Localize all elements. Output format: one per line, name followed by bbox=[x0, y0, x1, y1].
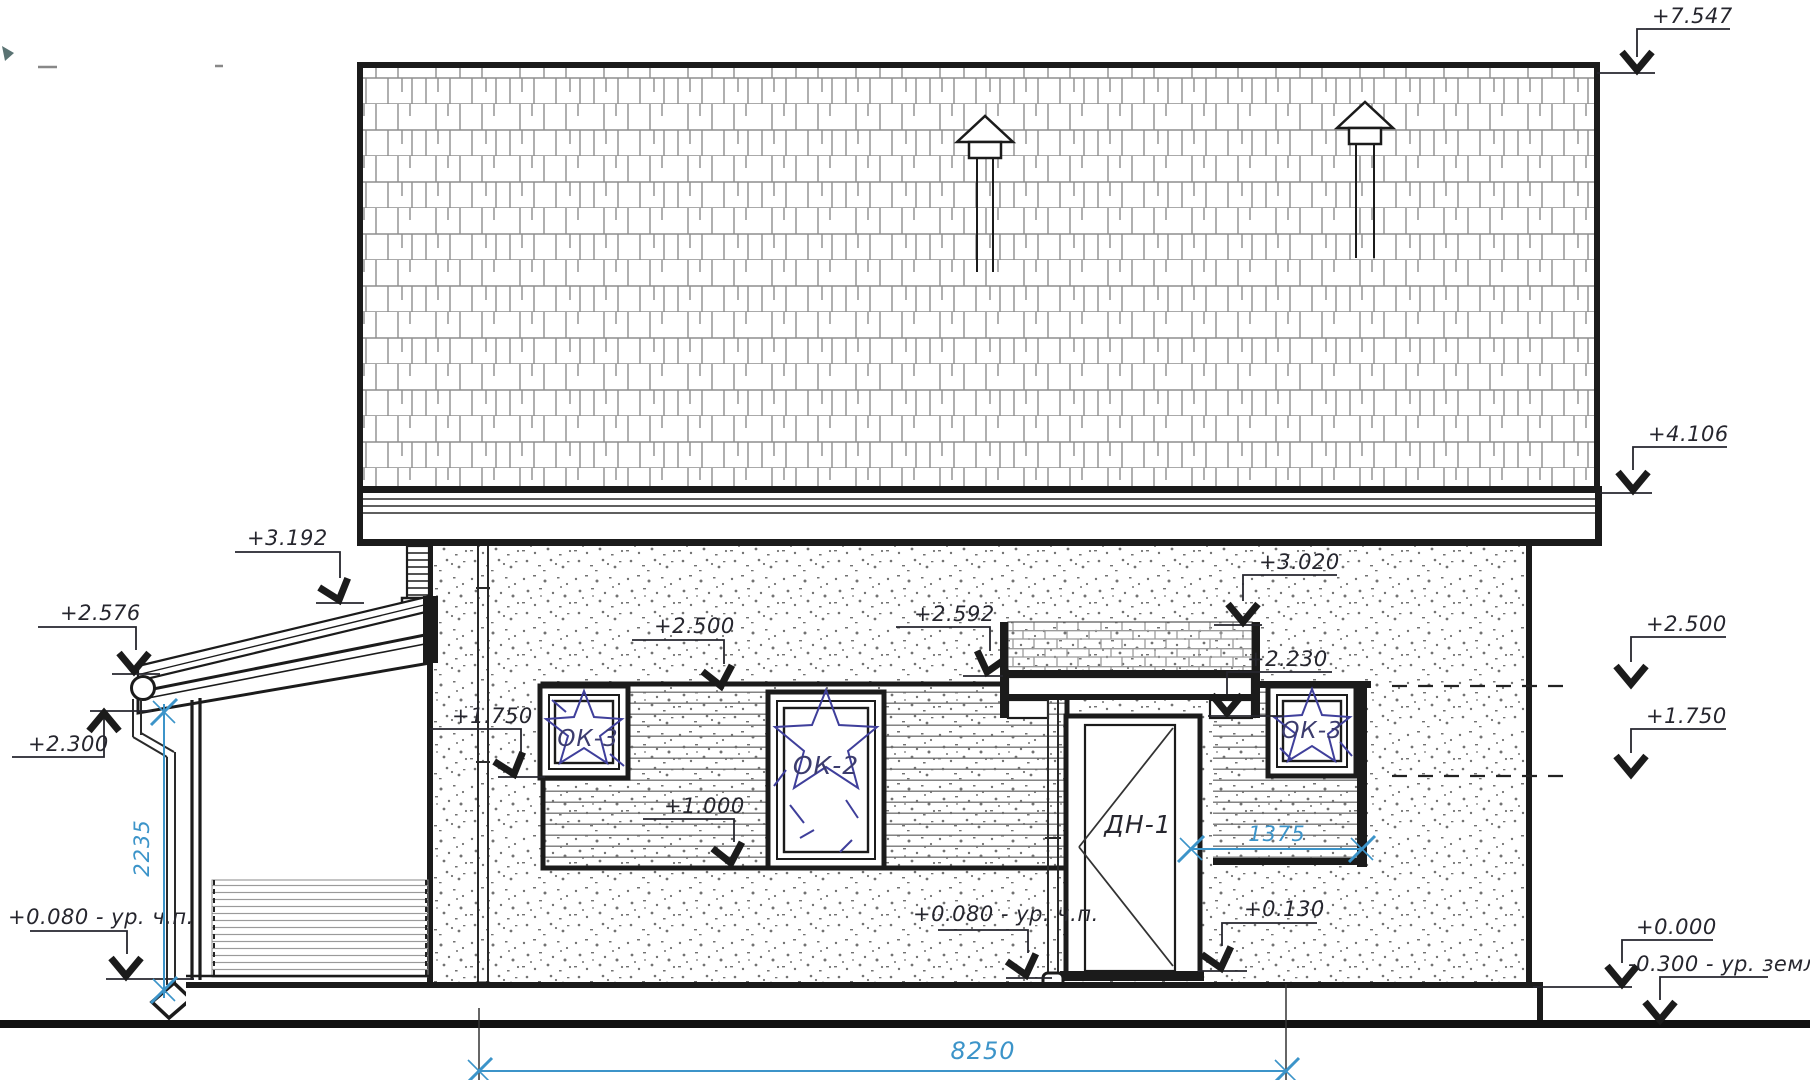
mark-leader bbox=[1631, 637, 1726, 662]
elevation-mark-1750-right: +1.750 bbox=[1616, 704, 1727, 774]
plinth bbox=[186, 982, 1543, 1022]
mark-label: -0.300 - ур. земли bbox=[1628, 952, 1810, 976]
canopy-bracket-left bbox=[1008, 700, 1048, 718]
mark-arrow bbox=[1616, 756, 1646, 774]
mark-label: +0.080 - ур. ч.п. bbox=[8, 905, 194, 929]
mark-label: +2.576 bbox=[60, 601, 141, 625]
porch-post bbox=[192, 698, 200, 980]
window-ok2-frame bbox=[768, 692, 884, 868]
window-ok2-label: ОК-2 bbox=[793, 751, 859, 780]
mark-label: +0.130 bbox=[1244, 897, 1325, 921]
ground-line bbox=[0, 1020, 1810, 1028]
window-ok3-left-label: ОК-3 bbox=[557, 726, 618, 752]
porch-lattice bbox=[212, 880, 428, 977]
fascia-bottom-edge bbox=[357, 539, 1602, 546]
window-ok3-right-label: ОК-3 bbox=[1281, 718, 1342, 744]
fascia-right-cap bbox=[1595, 490, 1602, 543]
mark-label: +4.106 bbox=[1648, 422, 1729, 446]
door-dn1 bbox=[1060, 716, 1204, 981]
mark-leader bbox=[235, 552, 340, 578]
mark-arrow bbox=[319, 578, 353, 604]
cursor-artifact bbox=[2, 46, 223, 67]
mark-arrow bbox=[1618, 472, 1648, 490]
fascia-left-cap bbox=[357, 490, 363, 543]
dim-value: 8250 bbox=[950, 1037, 1015, 1065]
elevation-mark-3192: +3.192 bbox=[235, 526, 364, 605]
elevation-mark-4106: +4.106 bbox=[1600, 422, 1729, 493]
brick-lintel bbox=[1008, 622, 1252, 672]
eave-fascia bbox=[357, 490, 1602, 546]
mark-label: +0.000 bbox=[1636, 915, 1717, 939]
grille-rungs bbox=[407, 553, 429, 595]
porch bbox=[132, 596, 439, 1018]
eave-trim-lines bbox=[362, 499, 1596, 513]
elevation-canvas: +7.547+4.106+3.192+2.576+2.300+2.500+1.7… bbox=[0, 0, 1810, 1080]
mark-leader bbox=[38, 627, 136, 650]
cursor-icon bbox=[2, 46, 14, 61]
wall-right-edge bbox=[1526, 546, 1532, 983]
porch-canopy-end-block bbox=[423, 596, 438, 663]
mark-label: +2.592 bbox=[914, 602, 995, 626]
mark-label: +7.547 bbox=[1652, 4, 1733, 28]
elevation-mark-7547: +7.547 bbox=[1597, 4, 1733, 73]
plinth-right-cap bbox=[1537, 982, 1543, 1022]
door-dn1-label: ДН-1 bbox=[1103, 810, 1171, 839]
vent-pipe-left-collar bbox=[969, 142, 1001, 158]
mark-arrow bbox=[111, 958, 141, 976]
siding-panel-right-bottom bbox=[1213, 858, 1367, 865]
vent-pipe-right-collar bbox=[1349, 128, 1381, 144]
mark-label: +3.192 bbox=[247, 526, 328, 550]
mark-leader bbox=[1631, 729, 1726, 753]
mark-leader bbox=[1633, 447, 1727, 470]
canopy-slab bbox=[1008, 677, 1252, 696]
mark-label: +0.080 - ур. ч.п. bbox=[913, 902, 1099, 926]
mark-label: +1.750 bbox=[1646, 704, 1727, 728]
grille-body bbox=[407, 546, 429, 599]
elevation-mark-2300: +2.300 bbox=[12, 711, 152, 757]
elevation-mark-0300: -0.300 - ур. земли bbox=[1628, 952, 1810, 1020]
dim-value: 1375 bbox=[1248, 822, 1305, 846]
smudge-marks bbox=[38, 66, 223, 67]
roof-bottom-edge bbox=[357, 486, 1602, 493]
mark-label: +1.750 bbox=[452, 704, 533, 728]
mark-arrow bbox=[1645, 1002, 1675, 1020]
mark-label: +3.020 bbox=[1259, 550, 1340, 574]
mark-arrow bbox=[1616, 666, 1646, 684]
elevation-mark-2500-right: +2.500 bbox=[1616, 612, 1727, 684]
dim-value: 2235 bbox=[130, 819, 154, 876]
mark-label: +2.300 bbox=[28, 732, 109, 756]
elevation-drawing: +7.547+4.106+3.192+2.576+2.300+2.500+1.7… bbox=[0, 0, 1810, 1080]
porch-gutter bbox=[132, 677, 155, 700]
mark-label: +2.230 bbox=[1247, 647, 1328, 671]
mark-leader bbox=[1660, 977, 1768, 1000]
mark-label: +2.500 bbox=[654, 614, 735, 638]
mark-label: +1.000 bbox=[664, 794, 745, 818]
mark-leader bbox=[30, 931, 127, 954]
canopy-post-left bbox=[1000, 622, 1008, 718]
door-threshold bbox=[1060, 971, 1204, 981]
plinth-body bbox=[186, 988, 1543, 1020]
mark-label: +2.500 bbox=[1646, 612, 1727, 636]
elevation-mark-2576: +2.576 bbox=[38, 601, 160, 674]
plinth-top-edge bbox=[186, 982, 1543, 988]
porch-downspout-shoe bbox=[152, 983, 191, 1018]
